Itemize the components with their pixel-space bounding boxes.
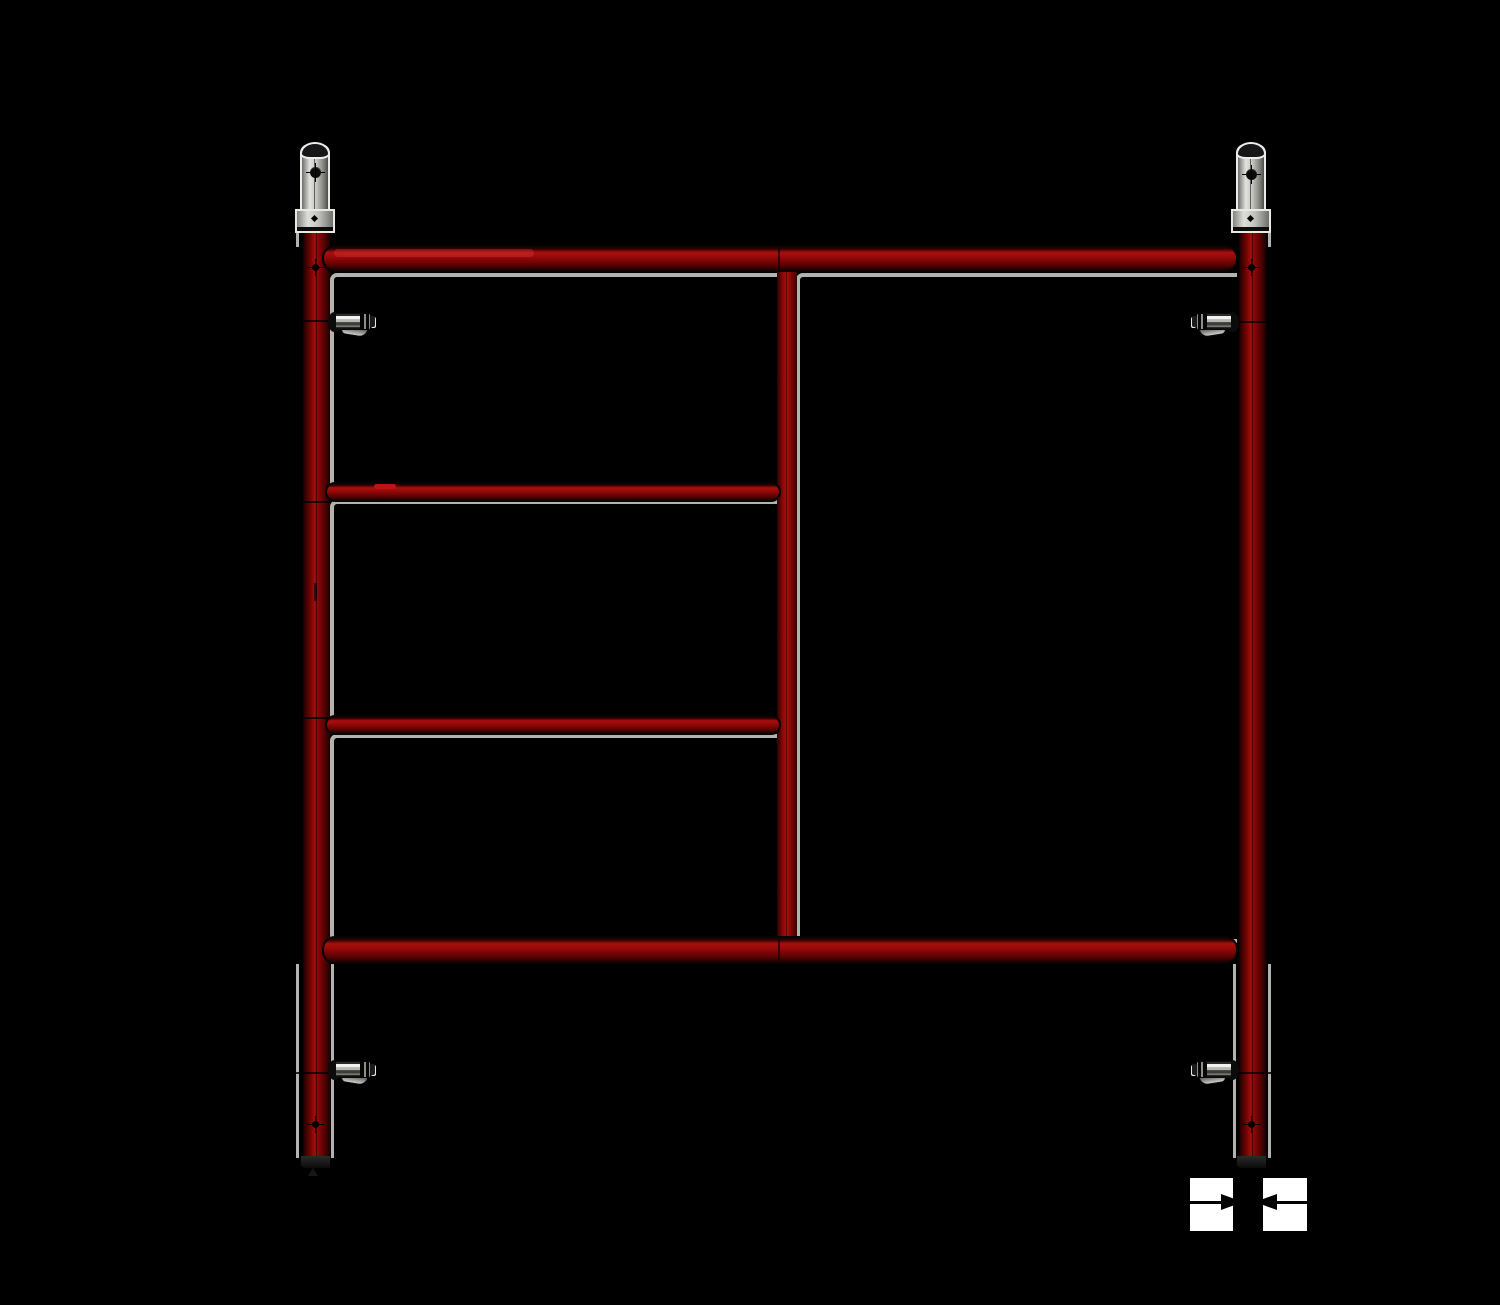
arrow-left-icon: [1255, 1194, 1277, 1210]
left-post-seam-1: [288, 320, 330, 322]
lock-tip: [1192, 316, 1197, 327]
left-post-foot-cap: [301, 1156, 330, 1168]
rung-specular: [374, 484, 396, 489]
pin-collar-left: [297, 211, 333, 231]
lock-body: [335, 1061, 361, 1078]
lock-rings: [1196, 1061, 1207, 1078]
lower-rung: [325, 715, 781, 735]
lock-tip: [370, 1064, 375, 1075]
right-post-foot-cap: [1237, 1156, 1266, 1168]
edge-highlight-left-post-outer: [296, 964, 299, 1158]
coupling-pin-right-cap: [1238, 144, 1264, 157]
foot-tick-mark: [308, 1168, 318, 1176]
left-post-seam-4: [288, 1072, 330, 1074]
left-post-seam-3: [288, 717, 330, 719]
right-post-seam-2: [1237, 1072, 1277, 1074]
edge-highlight-right-post-top: [1268, 231, 1271, 247]
panel-outline-right: [796, 273, 1246, 943]
right-post-seam-1: [1237, 321, 1277, 323]
edge-highlight-right-post-outer: [1268, 964, 1271, 1158]
coupling-pin-right-hole: [1245, 168, 1258, 181]
scaffold-frame-render: [0, 0, 1500, 1305]
lock-tip: [1192, 1064, 1197, 1075]
panel-outline-top-left: [330, 273, 787, 492]
lock-tip: [370, 316, 375, 327]
rivet-top-right: [1246, 262, 1257, 273]
left-post-seam-2: [288, 501, 330, 503]
panel-outline-bottom-left: [330, 734, 787, 942]
top-bar-specular: [334, 249, 534, 257]
coupling-pin-left-cap: [302, 144, 328, 157]
spring-lock-bottom-left: [328, 1059, 375, 1081]
rivet-bottom-right: [1246, 1119, 1257, 1130]
center-post: [777, 258, 797, 942]
left-post-slot: [314, 583, 317, 601]
arrow-right-icon: [1221, 1194, 1243, 1210]
pin-collar-right: [1233, 211, 1269, 231]
rivet-top-left: [310, 262, 321, 273]
bottom-ledger-bar: [322, 936, 1238, 964]
right-post: [1237, 229, 1266, 1168]
coupling-pin-left-hole: [309, 166, 322, 179]
lock-rings: [1196, 313, 1207, 330]
top-bar-weld-seam: [778, 247, 780, 270]
edge-highlight-left-post-top: [296, 231, 299, 247]
bottom-bar-weld-seam: [778, 938, 780, 962]
spring-lock-top-right: [1192, 311, 1239, 333]
rivet-bottom-left: [310, 1119, 321, 1130]
lock-body: [1206, 1061, 1232, 1078]
panel-outline-middle-left: [330, 500, 787, 723]
left-post: [301, 229, 330, 1168]
lock-body: [335, 313, 361, 330]
spring-lock-bottom-right: [1192, 1059, 1239, 1081]
spring-lock-top-left: [328, 311, 375, 333]
lock-body: [1206, 313, 1232, 330]
